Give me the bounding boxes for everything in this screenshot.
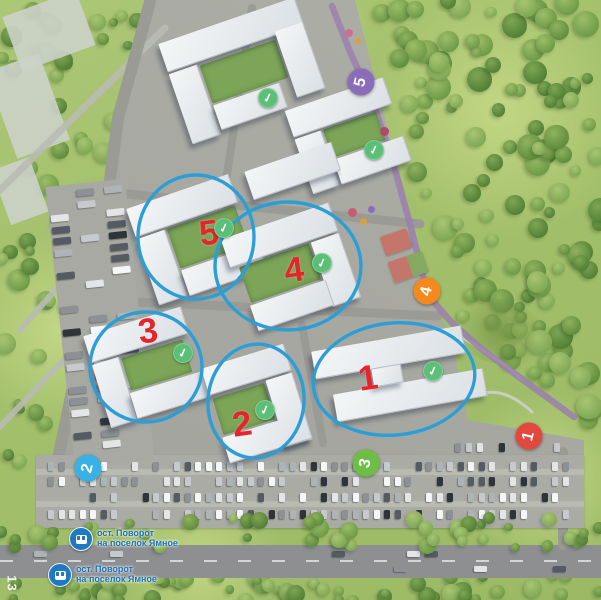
parked-car [466, 443, 472, 452]
parked-car [90, 493, 96, 502]
parked-car [86, 279, 105, 288]
parked-car [477, 443, 483, 452]
route-badge-number: 5 [351, 76, 371, 89]
parked-car [132, 462, 138, 471]
parked-car [48, 510, 54, 519]
parked-car [109, 231, 128, 240]
parked-car [216, 462, 222, 471]
parked-car [552, 493, 558, 502]
parked-car [437, 510, 443, 519]
parked-car [237, 477, 243, 486]
parked-car [447, 493, 453, 502]
parked-car [437, 462, 443, 471]
playground-item [345, 29, 353, 37]
completed-check-badge: ✓ [173, 343, 193, 363]
bus-stop-label-line1: ост. Поворот [97, 528, 154, 538]
parked-car [54, 248, 73, 257]
parked-car [510, 510, 516, 519]
bus-stop-label: ост. Поворотна поселок Ямное [76, 565, 157, 584]
parked-car [279, 510, 285, 519]
parked-car [106, 208, 125, 217]
parked-car [342, 462, 348, 471]
parked-car [164, 510, 170, 519]
parked-car [489, 493, 495, 502]
completed-check-badge: ✓ [312, 253, 332, 273]
parked-car [455, 443, 461, 452]
parked-car [405, 477, 411, 486]
parked-car [101, 510, 107, 519]
route-badge-4: 4 [414, 278, 441, 305]
parked-car [102, 440, 121, 449]
parked-car [216, 477, 222, 486]
parked-car [479, 477, 485, 486]
tree [593, 522, 601, 534]
parked-car [521, 462, 527, 471]
parking-lane [36, 469, 584, 475]
parked-car [563, 510, 569, 519]
tree [504, 523, 513, 532]
parked-car [104, 185, 123, 194]
tree [542, 512, 557, 527]
parked-car [479, 493, 485, 502]
parked-car [111, 510, 117, 519]
completed-check-badge: ✓ [255, 400, 275, 420]
parked-car [447, 462, 453, 471]
bus-stop-label-line2: на поселок Ямное [97, 538, 178, 548]
parked-car [89, 314, 108, 323]
parked-car [164, 493, 170, 502]
parked-car [554, 443, 560, 452]
parked-car [90, 510, 96, 519]
completed-check-badge: ✓ [364, 140, 384, 160]
parked-car [300, 462, 306, 471]
playground-item [360, 218, 367, 225]
parked-car [353, 477, 359, 486]
parked-car [122, 477, 128, 486]
parked-car [416, 462, 422, 471]
parked-car [185, 477, 191, 486]
parked-car [76, 188, 95, 197]
completed-check-badge: ✓ [214, 218, 234, 238]
completed-check-badge: ✓ [258, 88, 278, 108]
parked-car [279, 477, 285, 486]
parked-car [479, 462, 485, 471]
parked-car [468, 493, 474, 502]
parked-car [101, 477, 107, 486]
route-badge-number: 1 [519, 430, 539, 443]
parked-car [52, 225, 71, 234]
tree [427, 533, 440, 546]
parked-car [77, 199, 96, 208]
parked-car [153, 462, 159, 471]
page-number: 13 [5, 575, 20, 591]
parked-car [468, 477, 474, 486]
parked-car [258, 477, 264, 486]
parked-car [206, 462, 212, 471]
parked-car [321, 493, 327, 502]
parked-car [531, 462, 537, 471]
parked-car [531, 477, 537, 486]
parked-car [353, 510, 359, 519]
parked-car [195, 493, 201, 502]
bus-icon [69, 527, 93, 551]
parked-car [65, 351, 84, 360]
playground-item [368, 206, 375, 213]
parked-car [53, 237, 72, 246]
route-badge-number: 3 [356, 457, 376, 470]
parked-car [153, 493, 159, 502]
parked-car [521, 477, 527, 486]
parked-car [227, 493, 233, 502]
parked-car [59, 510, 65, 519]
route-badge-5: 5 [348, 69, 375, 96]
parked-car [81, 234, 100, 243]
parked-car [332, 493, 338, 502]
parked-car [185, 462, 191, 471]
parked-car [321, 477, 327, 486]
parked-car [206, 493, 212, 502]
parked-car [110, 242, 129, 251]
tree [243, 533, 252, 542]
parked-car [426, 493, 432, 502]
parked-car [206, 510, 212, 519]
route-badge-number: 4 [417, 285, 437, 298]
parked-car [174, 477, 180, 486]
bus-glyph [55, 571, 66, 580]
parked-car [321, 462, 327, 471]
parked-car [153, 510, 159, 519]
parked-car [132, 477, 138, 486]
parked-car [311, 462, 317, 471]
route-badge-2: 2 [75, 455, 102, 482]
parked-car [374, 510, 380, 519]
parked-car [112, 265, 131, 274]
moving-car [474, 566, 487, 572]
parked-car [60, 305, 79, 314]
moving-car [110, 551, 123, 557]
playground-item [348, 208, 357, 217]
parked-car [59, 462, 65, 471]
parked-car [195, 462, 201, 471]
tree [483, 512, 495, 524]
parked-car [510, 493, 516, 502]
bus-icon [48, 563, 72, 587]
parked-car [363, 510, 369, 519]
parked-car [107, 219, 126, 228]
parked-car [542, 493, 548, 502]
parked-car [458, 462, 464, 471]
parked-car [552, 477, 558, 486]
parked-car [51, 214, 70, 223]
check-glyph: ✓ [259, 403, 272, 417]
parked-car [290, 462, 296, 471]
tree [303, 516, 316, 529]
parked-car [269, 477, 275, 486]
parked-car [185, 493, 191, 502]
parked-car [437, 477, 443, 486]
parked-car [510, 462, 516, 471]
completed-check-badge: ✓ [423, 361, 443, 381]
parked-car [174, 493, 180, 502]
parked-car [279, 493, 285, 502]
parked-car [111, 477, 117, 486]
check-glyph: ✓ [368, 143, 381, 157]
parked-car [447, 510, 453, 519]
parked-car [248, 477, 254, 486]
check-glyph: ✓ [427, 364, 440, 378]
parked-car [384, 493, 390, 502]
parked-car [332, 462, 338, 471]
tree [182, 514, 199, 531]
parked-car [458, 477, 464, 486]
parked-car [57, 271, 76, 280]
parked-car [499, 443, 505, 452]
parked-car [342, 477, 348, 486]
parked-car [66, 362, 85, 371]
parked-car [374, 493, 380, 502]
parked-car [290, 510, 296, 519]
parked-car [48, 462, 54, 471]
parked-car [111, 493, 117, 502]
check-glyph: ✓ [218, 221, 231, 235]
route-badge-1: 1 [516, 423, 543, 450]
route-badge-3: 3 [353, 450, 380, 477]
parked-car [174, 462, 180, 471]
parked-car [342, 510, 348, 519]
parked-car [489, 462, 495, 471]
parked-car [279, 462, 285, 471]
parked-car [510, 477, 516, 486]
parked-car [237, 462, 243, 471]
playground-item [355, 38, 361, 44]
parked-car [468, 462, 474, 471]
tree [229, 514, 238, 523]
check-glyph: ✓ [262, 91, 275, 105]
parked-car [311, 477, 317, 486]
parked-car [384, 510, 390, 519]
parked-car [563, 462, 569, 471]
tree [42, 535, 58, 551]
parked-car [300, 493, 306, 502]
parked-car [216, 493, 222, 502]
parked-car [258, 462, 264, 471]
parked-car [563, 477, 569, 486]
parked-car [111, 254, 130, 263]
tree [457, 536, 467, 546]
parked-car [269, 510, 275, 519]
parked-car [59, 477, 65, 486]
bus-stop: ост. Поворотна поселок Ямное [69, 527, 93, 551]
parked-car [363, 493, 369, 502]
bus-stop: ост. Поворотна поселок Ямное [48, 563, 72, 587]
moving-car [394, 566, 407, 572]
tree [419, 521, 432, 534]
tree [542, 540, 553, 551]
parked-car [117, 311, 136, 320]
parked-car [384, 477, 390, 486]
parked-car [437, 493, 443, 502]
parked-car [71, 408, 90, 417]
parked-car [405, 493, 411, 502]
bus-stop-label-line2: на поселок Ямное [76, 574, 157, 584]
moving-car [34, 551, 47, 557]
parked-car [332, 510, 338, 519]
parked-car [69, 385, 88, 394]
check-glyph: ✓ [177, 346, 190, 360]
bus-glyph [76, 535, 87, 544]
parked-car [426, 462, 432, 471]
parked-car [489, 477, 495, 486]
parked-car [353, 493, 359, 502]
parked-car [384, 462, 390, 471]
parked-car [216, 510, 222, 519]
parked-car [395, 477, 401, 486]
parked-car [69, 510, 75, 519]
parked-car [258, 493, 264, 502]
moving-car [407, 551, 420, 557]
bus-stop-label: ост. Поворотна поселок Ямное [97, 529, 178, 548]
parked-car [500, 510, 506, 519]
bus-stop-label-line1: ост. Поворот [76, 564, 133, 574]
parked-car [237, 493, 243, 502]
site-plan: 12345✓✓✓✓✓✓✓54132ост. Поворотна поселок … [0, 0, 601, 600]
parked-car [500, 493, 506, 502]
parked-car [227, 477, 233, 486]
parked-car [48, 477, 54, 486]
parked-car [164, 477, 170, 486]
parked-car [80, 510, 86, 519]
parked-car [395, 510, 401, 519]
parked-car [521, 510, 527, 519]
moving-car [553, 566, 566, 572]
parked-car [395, 493, 401, 502]
parked-car [73, 431, 92, 440]
check-glyph: ✓ [316, 256, 329, 270]
route-badge-number: 2 [78, 462, 98, 475]
parked-car [70, 397, 89, 406]
parked-car [521, 493, 527, 502]
parked-car [552, 462, 558, 471]
parked-car [143, 493, 149, 502]
parked-car [342, 493, 348, 502]
parked-car [101, 428, 120, 437]
playground-item [380, 127, 389, 136]
parked-car [63, 328, 82, 337]
moving-car [332, 551, 345, 557]
